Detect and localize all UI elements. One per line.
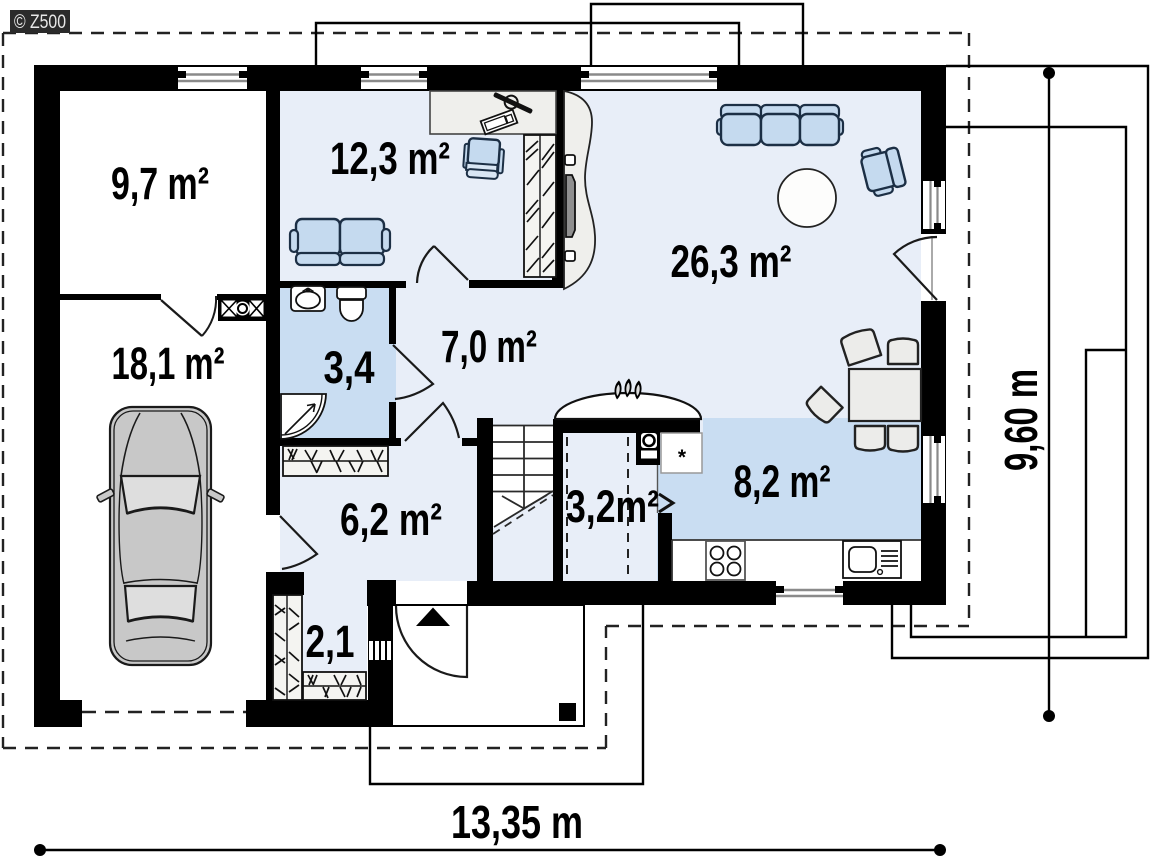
svg-text:26,3 m²: 26,3 m² — [671, 236, 792, 287]
svg-text:13,35 m: 13,35 m — [451, 796, 583, 848]
svg-text:12,3 m²: 12,3 m² — [330, 133, 450, 184]
svg-text:18,1 m²: 18,1 m² — [112, 338, 225, 389]
svg-text:*: * — [678, 446, 687, 469]
svg-text:9,60 m: 9,60 m — [995, 369, 1047, 471]
svg-text:3,4: 3,4 — [324, 342, 375, 393]
svg-text:3,2m²: 3,2m² — [566, 481, 659, 532]
svg-text:6,2 m²: 6,2 m² — [340, 494, 442, 545]
svg-text:9,7 m²: 9,7 m² — [111, 158, 209, 209]
svg-text:© Z500: © Z500 — [14, 12, 66, 33]
svg-text:8,2 m²: 8,2 m² — [734, 456, 831, 507]
svg-text:7,0 m²: 7,0 m² — [441, 321, 537, 372]
svg-text:2,1: 2,1 — [306, 616, 355, 667]
